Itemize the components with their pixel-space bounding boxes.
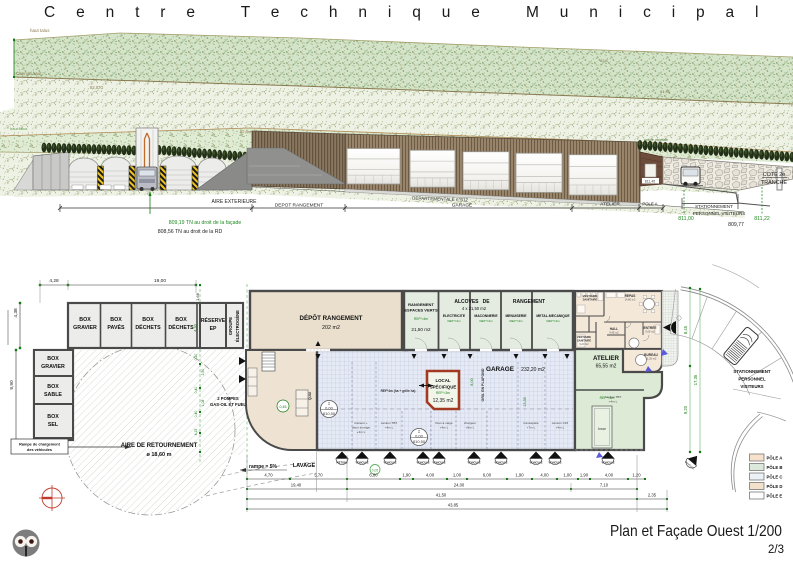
svg-text:809,77: 809,77 [728, 222, 744, 228]
svg-text:MENUISERIE: MENUISERIE [505, 314, 527, 318]
svg-text:43,85: 43,85 [448, 503, 459, 508]
svg-text:QUAI: QUAI [308, 392, 312, 400]
svg-text:11,20 m2: 11,20 m2 [646, 357, 657, 361]
svg-text:4,00: 4,00 [426, 473, 435, 478]
svg-text:GRAVIER: GRAVIER [41, 364, 65, 370]
svg-text:GARAGE: GARAGE [486, 366, 515, 373]
svg-text:+7m L: +7m L [527, 426, 536, 430]
svg-text:VEHICULE: VEHICULE [529, 461, 542, 465]
svg-text:chargeur: chargeur [464, 421, 476, 425]
svg-text:1,68: 1,68 [195, 292, 200, 301]
svg-text:DÉCHETS: DÉCHETS [135, 323, 161, 331]
svg-text:+8m L: +8m L [466, 426, 475, 430]
svg-text:SEL: SEL [48, 422, 59, 428]
svg-text:ø 18,60 m: ø 18,60 m [146, 452, 171, 458]
svg-text:camion C15: camion C15 [552, 421, 569, 425]
svg-text:ELECTRICITE: ELECTRICITE [443, 314, 466, 318]
svg-text:C e n t r e T e c h n i q u: C e n t r e T e c h n i q u e M u n i c … [44, 4, 767, 21]
svg-text:AIRE DE RETOURNEMENT: AIRE DE RETOURNEMENT [121, 443, 198, 449]
svg-text:Plan et Façade Ouest 1/200: Plan et Façade Ouest 1/200 [610, 523, 782, 540]
svg-text:5,70: 5,70 [314, 473, 323, 478]
svg-text:2,50: 2,50 [201, 369, 205, 376]
svg-text:ÉLECTROGÈNE: ÉLECTROGÈNE [235, 310, 240, 342]
svg-text:BOX: BOX [175, 317, 187, 323]
svg-text:6,00: 6,00 [483, 473, 492, 478]
svg-text:REF*=4m: REF*=4m [447, 319, 461, 323]
svg-text:810,50: 810,50 [323, 411, 336, 416]
svg-text:81,95: 81,95 [660, 89, 671, 94]
svg-text:VEHICULE: VEHICULE [432, 461, 445, 465]
svg-text:+4m L: +4m L [357, 430, 366, 434]
svg-text:0,40: 0,40 [194, 387, 198, 394]
svg-text:BOX: BOX [110, 317, 122, 323]
svg-text:DÉPÔT RANGEMENT: DÉPÔT RANGEMENT [300, 314, 363, 322]
svg-text:REF*4m (ha + grille ha): REF*4m (ha + grille ha) [381, 389, 416, 393]
svg-text:Chemin haut: Chemin haut [16, 71, 42, 76]
svg-text:+4m L: +4m L [440, 426, 449, 430]
svg-text:REPAS: REPAS [625, 294, 636, 298]
svg-text:4,70: 4,70 [264, 473, 273, 478]
svg-text:RANGEMENT: RANGEMENT [408, 302, 434, 307]
svg-text:0,40: 0,40 [194, 411, 198, 418]
svg-text:8,00: 8,00 [470, 378, 474, 385]
svg-text:9,20 m2: 9,20 m2 [579, 343, 589, 346]
svg-text:4,15: 4,15 [194, 429, 198, 436]
svg-text:ALCOVES DE: ALCOVES DE [454, 299, 490, 305]
svg-text:GRAVIER: GRAVIER [73, 325, 97, 331]
svg-text:810,50: 810,50 [413, 439, 426, 444]
svg-text:SANITAIRE: SANITAIRE [583, 298, 598, 302]
svg-text:SANITAIRE: SANITAIRE [577, 339, 591, 343]
svg-text:0,45: 0,45 [280, 405, 287, 409]
svg-text:4,38: 4,38 [13, 308, 19, 318]
svg-text:0,20: 0,20 [194, 354, 198, 361]
svg-text:haut talus: haut talus [30, 28, 50, 33]
svg-text:7,10: 7,10 [600, 483, 609, 488]
svg-text:ATELIER: ATELIER [593, 355, 620, 362]
svg-text:METAL-MECANIQUE: METAL-MECANIQUE [536, 314, 570, 318]
svg-text:VEHICULE: VEHICULE [416, 461, 429, 465]
svg-text:+4m L: +4m L [609, 400, 618, 404]
svg-text:HALL: HALL [610, 327, 619, 331]
svg-text:GROUPE: GROUPE [228, 317, 233, 335]
svg-text:82,6: 82,6 [600, 58, 609, 63]
svg-text:PÔLE C: PÔLE C [767, 475, 783, 480]
svg-text:4,00: 4,00 [605, 473, 614, 478]
svg-text:1,08: 1,08 [201, 400, 205, 407]
svg-text:RANGEMENT: RANGEMENT [513, 299, 545, 305]
svg-text:camion TBT: camion TBT [605, 395, 622, 399]
svg-text:PIETONS: PIETONS [336, 461, 348, 465]
svg-text:5,60 m2: 5,60 m2 [645, 330, 655, 334]
svg-text:13,35: 13,35 [523, 397, 527, 407]
svg-text:REF*=4m: REF*=4m [509, 319, 523, 323]
svg-text:GRIL EN PLAFOND: GRIL EN PLAFOND [481, 368, 485, 401]
svg-text:PÔLE A: PÔLE A [767, 456, 783, 461]
svg-text:811,22: 811,22 [754, 216, 770, 222]
svg-text:VISITEURS: VISITEURS [740, 384, 763, 389]
svg-text:DÉCHETS: DÉCHETS [168, 323, 194, 331]
svg-text:ATELIER: ATELIER [600, 202, 620, 208]
svg-text:AIRE EXTERIEURE: AIRE EXTERIEURE [211, 199, 257, 205]
svg-text:811,00: 811,00 [678, 216, 694, 222]
svg-text:PAVÉS: PAVÉS [107, 323, 125, 331]
svg-text:19,40: 19,40 [291, 483, 302, 488]
svg-text:BUREAU: BUREAU [644, 353, 658, 357]
svg-text:fosse: fosse [598, 427, 606, 431]
svg-text:1,90: 1,90 [402, 473, 411, 478]
svg-text:9,90: 9,90 [9, 380, 15, 390]
svg-text:19,00: 19,00 [154, 278, 166, 284]
svg-text:21,50 m2: 21,50 m2 [411, 327, 431, 332]
svg-text:BOX: BOX [47, 356, 59, 362]
svg-text:camion TBT: camion TBT [381, 421, 398, 425]
svg-text:9,20: 9,20 [683, 405, 688, 414]
svg-text:VEHICULE: VEHICULE [467, 461, 480, 465]
svg-text:202 m2: 202 m2 [322, 325, 340, 331]
svg-text:BOX: BOX [79, 317, 91, 323]
svg-text:1,90: 1,90 [515, 473, 524, 478]
svg-text:EP: EP [210, 326, 217, 332]
svg-text:809,19 TN au droit de la façad: 809,19 TN au droit de la façade [169, 220, 242, 226]
svg-text:SABLE: SABLE [44, 392, 62, 398]
svg-text:9,45 m2: 9,45 m2 [609, 331, 619, 335]
svg-text:4,28: 4,28 [49, 278, 59, 284]
svg-text:ESPACES VERTS: ESPACES VERTS [404, 308, 438, 313]
svg-text:VEHICULE: VEHICULE [548, 461, 561, 465]
svg-text:MACONNERIE: MACONNERIE [474, 314, 498, 318]
svg-text:PERSONNEL VISITEURS: PERSONNEL VISITEURS [693, 211, 746, 216]
svg-text:17,35: 17,35 [693, 374, 698, 385]
svg-text:1,90: 1,90 [580, 473, 589, 478]
svg-text:BOX: BOX [47, 384, 59, 390]
svg-text:808,56 TN au droit de la RD: 808,56 TN au droit de la RD [158, 229, 223, 235]
svg-text:STATIONNEMENT: STATIONNEMENT [733, 369, 770, 374]
svg-text:14,80 m2: 14,80 m2 [625, 298, 636, 302]
svg-text:4,30: 4,30 [194, 324, 198, 331]
svg-text:8,45: 8,45 [683, 325, 688, 334]
svg-text:4,00: 4,00 [540, 473, 549, 478]
svg-text:VEHICULE: VEHICULE [601, 461, 614, 465]
svg-text:haut talus: haut talus [10, 126, 27, 131]
svg-text:GAS-OIL ET FUEL: GAS-OIL ET FUEL [210, 402, 246, 407]
svg-text:232,20 m2: 232,20 m2 [521, 367, 545, 373]
svg-text:4 x 21,50 m2: 4 x 21,50 m2 [462, 306, 487, 311]
svg-text:PÔLE B: PÔLE B [767, 465, 783, 470]
svg-text:VEHICULE: VEHICULE [355, 461, 368, 465]
svg-text:BOX: BOX [142, 317, 154, 323]
svg-text:2,35: 2,35 [648, 493, 657, 498]
svg-text:SPÉCIFIQUE: SPÉCIFIQUE [430, 385, 457, 390]
svg-text:VEHICULE: VEHICULE [383, 461, 396, 465]
svg-text:12,35 m2: 12,35 m2 [433, 398, 454, 404]
svg-text:+4m L: +4m L [385, 426, 394, 430]
svg-text:PÔLE E: PÔLE E [767, 494, 783, 499]
svg-text:transapelle: transapelle [523, 421, 538, 425]
svg-text:REF*=4m: REF*=4m [479, 319, 493, 323]
svg-text:24,00: 24,00 [454, 483, 465, 488]
svg-text:PÔLE D: PÔLE D [767, 484, 783, 489]
svg-text:STATIONNEMENT: STATIONNEMENT [695, 204, 733, 209]
svg-text:REF*=3m: REF*=3m [436, 391, 450, 395]
svg-text:fixes à neige: fixes à neige [435, 421, 453, 425]
svg-text:ENTRÉE: ENTRÉE [644, 325, 657, 330]
svg-text:41,50: 41,50 [436, 493, 447, 498]
svg-text:POLE A: POLE A [642, 202, 657, 207]
svg-text:des véhicules: des véhicules [27, 448, 52, 452]
svg-text:+4m L: +4m L [556, 426, 565, 430]
svg-text:DEPOT RANGEMENT: DEPOT RANGEMENT [275, 203, 323, 209]
svg-text:deux-à-neige: deux-à-neige [352, 426, 370, 430]
svg-text:REF*=4m: REF*=4m [414, 317, 428, 321]
svg-text:1,00: 1,00 [453, 473, 462, 478]
svg-text:811,45: 811,45 [645, 180, 655, 184]
svg-text:COTE 2e: COTE 2e [763, 172, 785, 178]
svg-text:2/3: 2/3 [768, 544, 784, 556]
svg-text:nature végétale: nature végétale [644, 138, 668, 142]
svg-text:LOCAL: LOCAL [435, 378, 450, 383]
svg-text:BOX: BOX [47, 414, 59, 420]
svg-text:6,00: 6,00 [369, 473, 378, 478]
svg-text:tracteur +: tracteur + [354, 421, 367, 425]
svg-text:PERSONNEL: PERSONNEL [738, 377, 766, 382]
svg-text:GARAGE: GARAGE [452, 203, 473, 209]
svg-text:82,070: 82,070 [90, 85, 103, 90]
svg-text:REF*=4m: REF*=4m [546, 319, 560, 323]
svg-text:65,55 m2: 65,55 m2 [596, 364, 617, 370]
svg-text:TRANCHE: TRANCHE [761, 180, 787, 186]
svg-text:Rampe de chargement: Rampe de chargement [19, 443, 60, 447]
svg-text:VEHICULE: VEHICULE [494, 461, 507, 465]
svg-text:rampe = 5%: rampe = 5% [249, 464, 277, 470]
svg-text:82,6m: 82,6m [240, 129, 252, 134]
svg-text:2 POMPES: 2 POMPES [217, 396, 239, 401]
svg-text:LAVAGE: LAVAGE [293, 463, 316, 469]
svg-text:VESTIAIRE: VESTIAIRE [577, 335, 591, 339]
svg-text:1,00: 1,00 [563, 473, 572, 478]
svg-text:RÉSERVE: RÉSERVE [201, 316, 226, 324]
